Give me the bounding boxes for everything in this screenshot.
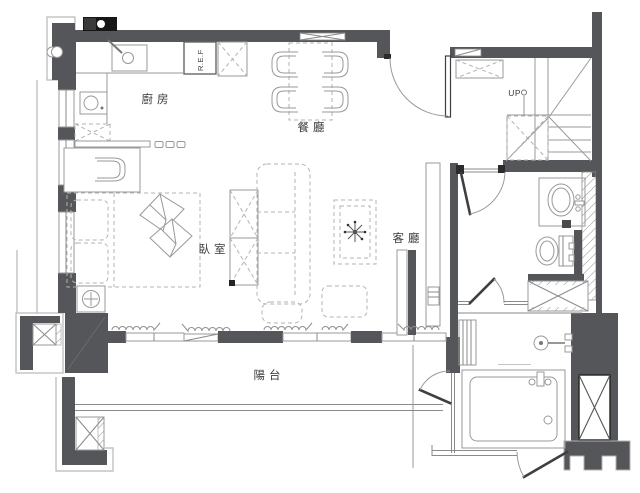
balcony-label: 陽台 <box>254 368 285 382</box>
dining-set <box>272 43 348 120</box>
sofa-ottoman <box>262 302 302 323</box>
refrigerator-label: R.E.F <box>196 49 205 71</box>
towel-radiator <box>459 320 476 365</box>
storage-box <box>528 281 588 311</box>
walls <box>52 12 631 470</box>
refrigerator: R.E.F <box>184 42 216 74</box>
floor-plan-svg: R.E.F <box>0 0 640 493</box>
shower-head <box>534 334 572 352</box>
bathroom <box>456 165 588 311</box>
dining-chair <box>322 52 348 77</box>
living-label: 客廳 <box>393 231 424 245</box>
floor-cushion <box>322 286 367 317</box>
bottom-left-corner <box>56 377 113 471</box>
balcony <box>75 405 443 411</box>
dining-chair <box>272 87 298 112</box>
bed <box>67 193 200 287</box>
shower-room-door <box>470 279 494 303</box>
floor-plan: R.E.F <box>0 0 640 493</box>
tv-cabinet <box>229 190 258 286</box>
dining-chair <box>322 87 348 112</box>
curtains <box>112 323 439 331</box>
coffee-table <box>334 200 376 264</box>
bathroom-door <box>461 173 470 214</box>
bathtub <box>462 370 565 448</box>
entry-door <box>524 452 567 477</box>
bathroom-sink <box>539 178 585 226</box>
bedroom-label: 臥室 <box>199 242 230 256</box>
sofa <box>257 164 310 323</box>
bath-mat <box>498 362 531 368</box>
left-parapet <box>16 313 63 373</box>
kitchen-sink <box>108 40 147 71</box>
kitchen-label: 廚房 <box>142 92 173 106</box>
cooktop <box>80 92 107 114</box>
tv-wall <box>408 250 416 335</box>
balcony-shower-door <box>420 390 450 403</box>
tv-console <box>397 250 407 335</box>
dining-label: 餐廳 <box>298 120 329 134</box>
dining-chair <box>272 52 298 77</box>
stairs: UP <box>456 58 591 161</box>
stairs-up-label: UP <box>508 88 521 98</box>
pillow <box>71 200 108 240</box>
quilt <box>140 194 192 257</box>
bedroom <box>64 148 200 312</box>
desk <box>64 148 140 192</box>
pillow <box>71 243 108 283</box>
living-room <box>257 163 440 335</box>
plant <box>344 221 367 242</box>
toilet <box>536 236 574 266</box>
washing-machine <box>77 286 105 312</box>
floor-drain <box>562 220 571 228</box>
hall-door <box>390 56 451 117</box>
